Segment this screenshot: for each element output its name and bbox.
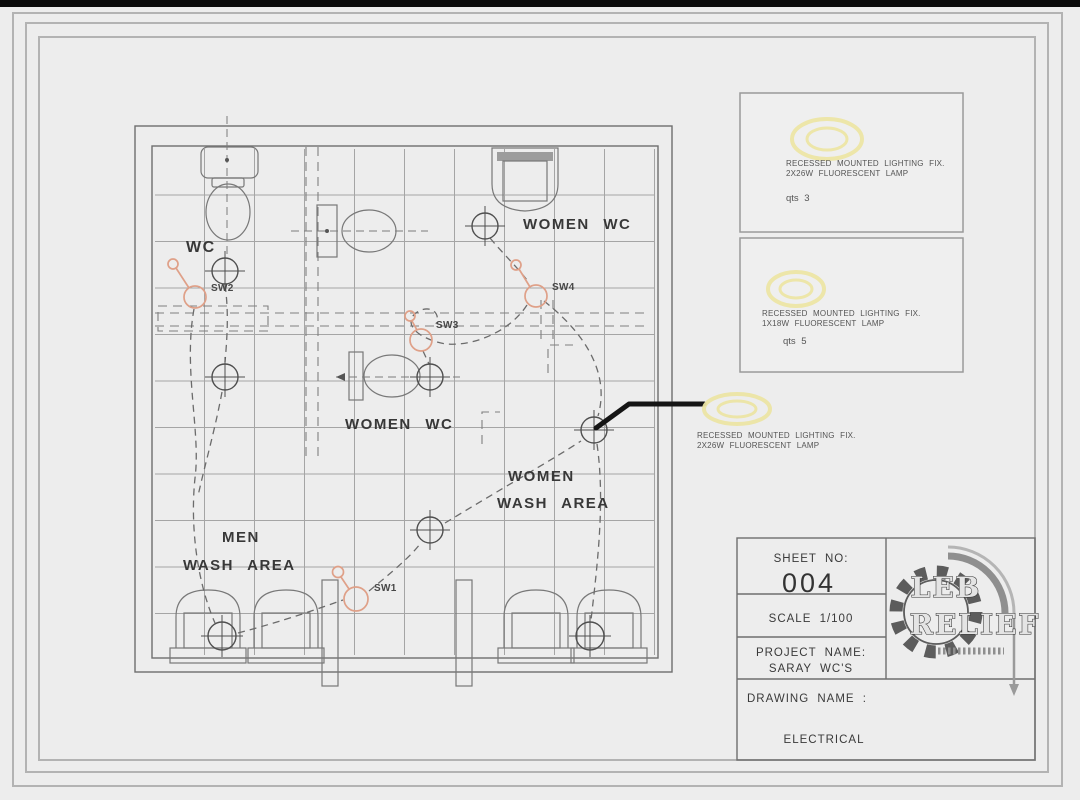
legend-2-line-1: RECESSED MOUNTED LIGHTING FIX. — [762, 309, 921, 318]
drawing-name-value: ELECTRICAL — [784, 734, 865, 746]
room-label-women-wash-1: WOMEN — [508, 468, 575, 485]
drawing-name-label: DRAWING NAME : — [747, 693, 867, 705]
switch-label-sw4: SW4 — [552, 282, 575, 293]
electrical-drawing-canvas: WC WOMEN WC WOMEN WC WOMEN WASH AREA MEN… — [0, 0, 1080, 800]
legend-box-2: RECESSED MOUNTED LIGHTING FIX. 1X18W FLU… — [740, 238, 963, 372]
scale-value: SCALE 1/100 — [769, 613, 854, 625]
sheet-no-value: 004 — [782, 568, 836, 598]
sheet-no-label: SHEET NO: — [774, 553, 849, 565]
logo-text-top: LEB — [911, 571, 982, 604]
room-label-women-wc-top: WOMEN WC — [523, 216, 631, 233]
project-name-value: SARAY WC'S — [769, 663, 853, 675]
room-label-men-wash-2: WASH AREA — [183, 557, 296, 574]
room-label-women-wash-2: WASH AREA — [497, 495, 610, 512]
company-logo: LEB RELIEF — [896, 547, 1040, 696]
legend-box-1: RECESSED MOUNTED LIGHTING FIX. 2X26W FLU… — [740, 93, 963, 232]
legend-1-qty: qts 3 — [786, 193, 810, 204]
room-label-women-wc-mid: WOMEN WC — [345, 416, 453, 433]
lamp-symbol-icon — [704, 394, 770, 424]
callout-line-1: RECESSED MOUNTED LIGHTING FIX. — [697, 431, 856, 440]
logo-arrow — [1009, 684, 1019, 696]
legend-2-qty: qts 5 — [783, 336, 807, 347]
switch-label-sw1: SW1 — [374, 583, 397, 594]
screen-top-bar — [0, 0, 1080, 7]
legend-1-line-2: 2X26W FLUORESCENT LAMP — [786, 169, 908, 178]
switch-label-sw2: SW2 — [211, 283, 234, 294]
room-label-men-wash-1: MEN — [222, 529, 260, 546]
drawing-sheet: WC WOMEN WC WOMEN WC WOMEN WASH AREA MEN… — [0, 0, 1080, 800]
title-block: SHEET NO: 004 SCALE 1/100 PROJECT NAME: … — [737, 538, 1040, 760]
switch-label-sw3: SW3 — [436, 320, 459, 331]
floor-plan: WC WOMEN WC WOMEN WC WOMEN WASH AREA MEN… — [135, 116, 672, 686]
callout-line-2: 2X26W FLUORESCENT LAMP — [697, 441, 819, 450]
legend-1-line-1: RECESSED MOUNTED LIGHTING FIX. — [786, 159, 945, 168]
logo-text-bottom: RELIEF — [910, 608, 1041, 641]
project-name-label: PROJECT NAME: — [756, 647, 866, 659]
legend-2-line-2: 1X18W FLUORESCENT LAMP — [762, 319, 884, 328]
room-label-wc: WC — [186, 239, 216, 256]
